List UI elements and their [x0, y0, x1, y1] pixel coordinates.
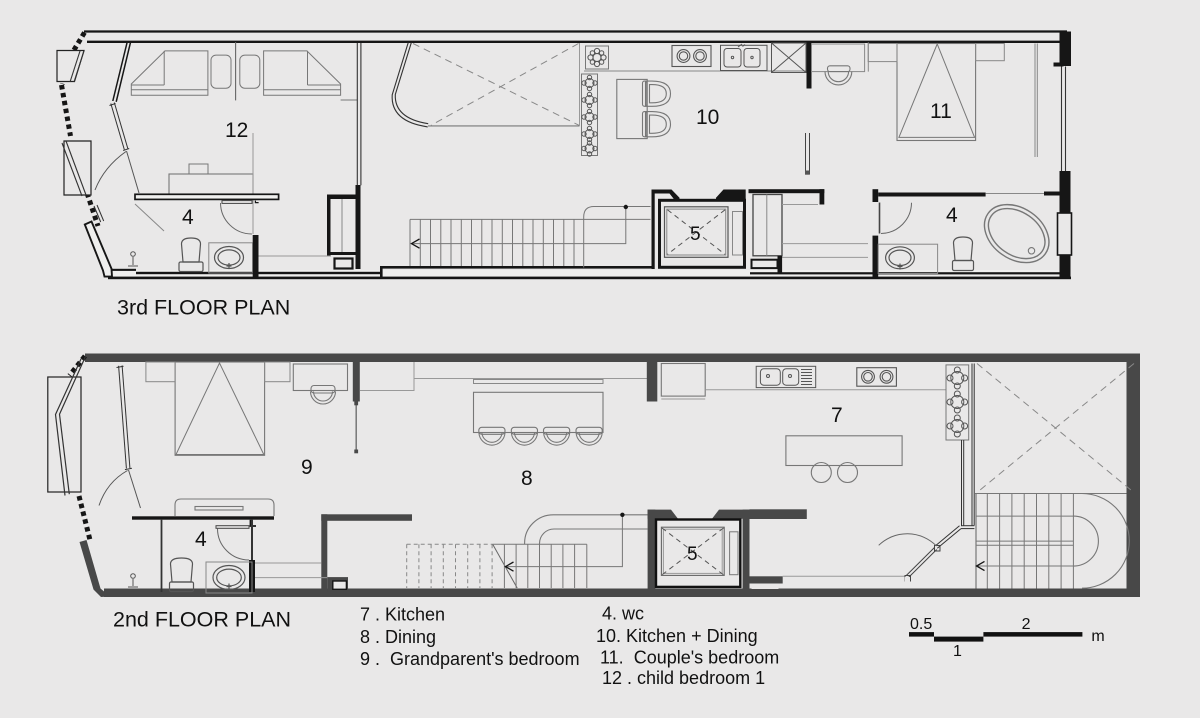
svg-text:5: 5 — [690, 224, 701, 245]
svg-text:3rd FLOOR PLAN: 3rd FLOOR PLAN — [117, 296, 290, 320]
svg-text:12: 12 — [225, 119, 248, 142]
svg-text:11: 11 — [930, 100, 952, 123]
svg-text:2: 2 — [1022, 616, 1031, 633]
svg-text:4. wc: 4. wc — [602, 604, 644, 624]
svg-text:7 . Kitchen: 7 . Kitchen — [360, 605, 445, 625]
svg-text:8: 8 — [521, 467, 533, 490]
svg-text:2nd FLOOR PLAN: 2nd FLOOR PLAN — [113, 608, 291, 632]
svg-text:12 . child bedroom 1: 12 . child bedroom 1 — [602, 668, 765, 688]
svg-text:m: m — [1091, 628, 1104, 645]
svg-text:0.5: 0.5 — [910, 616, 932, 633]
svg-text:11. Couple's bedroom: 11. Couple's bedroom — [600, 648, 779, 668]
svg-text:10: 10 — [696, 106, 719, 129]
svg-text:4: 4 — [946, 204, 958, 227]
svg-text:1: 1 — [953, 643, 962, 660]
svg-text:4: 4 — [195, 528, 207, 551]
svg-text:4: 4 — [182, 206, 194, 229]
svg-text:8 . Dining: 8 . Dining — [360, 627, 436, 647]
svg-text:5: 5 — [687, 544, 698, 565]
svg-text:7: 7 — [831, 404, 843, 427]
svg-text:10. Kitchen + Dining: 10. Kitchen + Dining — [596, 626, 758, 646]
svg-text:9 . Grandparent's bedroom: 9 . Grandparent's bedroom — [360, 649, 580, 669]
svg-text:9: 9 — [301, 456, 313, 479]
